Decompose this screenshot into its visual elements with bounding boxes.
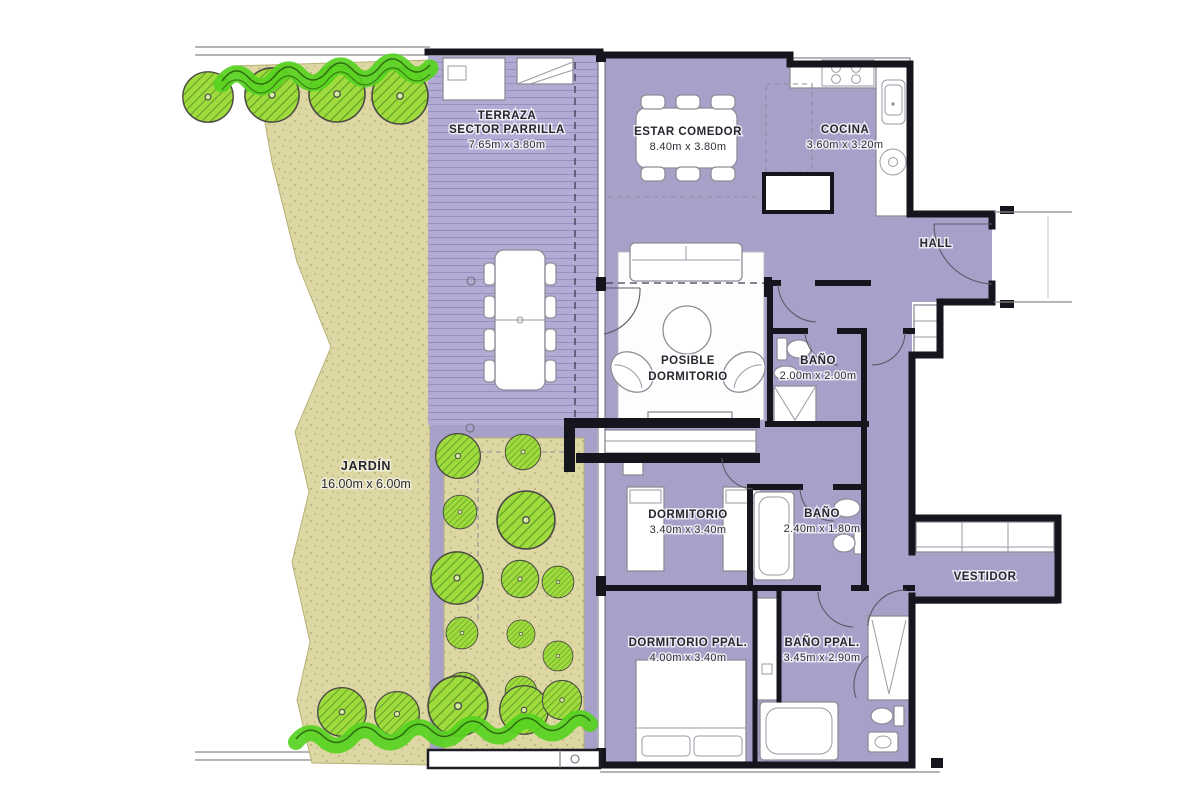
shower [774,386,816,422]
window-wall [596,52,606,764]
coffee-table [663,306,711,354]
label-jardin: JARDÍN [341,458,391,473]
tree [543,641,573,671]
label-vestidor: VESTIDOR [954,571,1017,583]
living-area [603,243,773,420]
label-posible-2: DORMITORIO [648,371,728,383]
kitchen-island [764,174,832,212]
label-cocina: COCINA [821,124,869,136]
dims-jardin: 16.00m x 6.00m [321,477,411,491]
terrace-table [484,250,556,390]
garden-ground [232,60,430,765]
nightstand [623,462,643,475]
dims-dormitorio: 3.40m x 3.40m [650,524,727,536]
floor-plan-page: TERRAZA SECTOR PARRILLA 7.65m x 3.80m ES… [0,0,1200,800]
floor-plan-svg: TERRAZA SECTOR PARRILLA 7.65m x 3.80m ES… [0,0,1200,800]
tree [443,495,477,529]
bathtub [754,492,794,580]
entry-landing [994,212,1072,302]
wardrobe-area [916,522,1054,552]
label-posible: POSIBLE [661,355,715,367]
bidet [868,732,898,752]
tree [497,491,555,549]
label-dormitorio: DORMITORIO [648,509,728,521]
dims-bano-dormitorio: 2.40m x 1.80m [784,523,861,535]
tree [446,617,478,649]
label-terraza: TERRAZA [478,110,536,122]
label-bano-ppal: BAÑO PPAL. [784,636,859,649]
hall-closet [914,305,938,353]
garden [232,60,430,765]
label-bano-dormitorio: BAÑO [804,507,840,520]
tree [431,552,483,604]
bed-master [636,660,746,762]
dims-dormitorio-ppal: 4.00m x 3.40m [650,652,727,664]
label-hall: HALL [920,238,953,250]
tree [507,620,535,648]
label-terraza-2: SECTOR PARRILLA [449,124,565,136]
dining-table [636,95,737,181]
tree [542,566,574,598]
bottom-fence [428,750,600,768]
tree [501,560,538,597]
dims-bano-ppal: 3.45m x 2.90m [784,652,861,664]
dims-bano-hall: 2.00m x 2.00m [780,370,857,382]
toilet [871,706,904,726]
vanity-tub [760,702,838,760]
tree [436,434,481,479]
label-estar-comedor: ESTAR COMEDOR [634,126,742,138]
dims-estar-comedor: 8.40m x 3.80m [650,141,727,153]
tree [505,434,540,469]
toilet [833,532,864,554]
dims-terraza: 7.65m x 3.80m [469,139,546,151]
label-bano-hall: BAÑO [800,354,836,367]
closet-column [757,598,778,700]
sofa [630,243,742,281]
dims-cocina: 3.60m x 3.20m [807,139,884,151]
label-dormitorio-ppal: DORMITORIO PPAL. [629,637,748,649]
